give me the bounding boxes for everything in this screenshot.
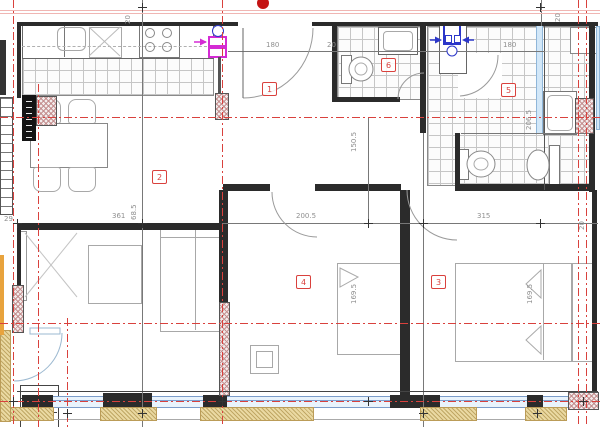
room-label-6: 6 [381,58,396,72]
section-line [423,133,424,427]
axis-tick [13,219,22,228]
dim-text: 315 [477,212,490,220]
dim-text: 361 [112,212,125,220]
axis-tick [533,409,542,418]
insulation-strip-left [0,330,11,422]
axis-line-h [0,117,600,118]
kitchen-floor-tiles [22,57,214,96]
axis-line-h [0,401,600,402]
insulation-strip [100,407,157,421]
bath6-sink [383,31,413,51]
axis-line-pink [0,10,600,11]
dim-text: 169.5 [526,284,534,304]
axis-line-h [0,323,600,324]
toilet-tank [341,55,352,84]
axis-tick [536,3,545,12]
axis-tick [364,397,373,406]
wardrobe-divider [195,227,196,330]
insulation-strip [525,407,567,421]
bed-room3 [455,263,572,362]
wall-far-left-stub [0,40,6,95]
dining-table [30,123,108,168]
window-right-sliver [596,26,600,130]
balcony-door-leaf [30,328,60,334]
axis-tick [63,409,72,418]
axis-line-v [586,0,587,427]
bed-headboard-line [543,263,544,360]
axis-tick [138,3,147,12]
wc-door-arc [407,190,457,240]
wall-bath6-left [332,22,337,102]
red-marker-dot [257,0,269,9]
dimension-line [228,51,545,52]
window [53,396,103,408]
radiator [0,97,13,215]
wardrobe-slim [572,263,594,362]
room-label-5: 5 [501,83,516,97]
axis-tick [419,409,428,418]
room-label-2: 2 [152,170,167,184]
cooktop [139,25,180,58]
axis-tick [579,397,588,406]
dim-text: 20 [578,221,586,230]
chair [68,167,96,192]
kitchen-sink [57,27,86,51]
axis-line-pink [0,13,600,14]
insulation-strip [420,407,477,421]
bath5-sink [547,95,573,131]
washing-machine-detail [445,35,452,43]
counter-edge-dashed [22,46,212,47]
wall-left-lower [17,230,21,292]
axis-tick [138,409,147,418]
boiler-fixture[interactable] [208,36,227,47]
section-line [142,0,143,427]
dim-text: 29 [4,215,13,223]
door-swing-line [25,233,77,297]
axis-line-v [222,0,223,427]
dim-text: 206.5 [525,110,533,130]
bed-small [88,245,142,304]
chair [68,99,96,124]
dim-text: 180 [266,41,279,49]
insulation-strip [200,407,314,421]
dim-text: 180 [503,41,516,49]
nightstand-inner [256,351,273,368]
wall-inner-line [17,391,598,392]
bed-room4 [337,263,401,355]
dim-text: 169.5 [350,284,358,304]
wall-divider-right [400,190,410,395]
axis-tick [9,397,18,406]
axis-line-v [13,0,14,427]
wall-right-lower [592,190,597,395]
wardrobe [160,227,224,332]
wall-left-upper [17,22,21,98]
door-swing-line [25,233,77,297]
section-line [368,118,369,223]
wardrobe-line [160,237,222,238]
axis-tick [364,219,373,228]
wall-top-right [312,22,598,26]
entrance-door-arc [243,28,313,98]
dim-text: 20 [327,41,336,49]
wall-bedroom-top [17,223,222,230]
room-label-3: 3 [431,275,446,289]
hatched-pier [36,96,57,126]
axis-tick [138,219,147,228]
wall-corridor-c [455,184,591,191]
floor-plan: 20 180 20 180 20 150.5 206.5 29 361 68.5… [0,0,600,427]
dim-text: 20 [124,15,132,24]
washing-machine-detail [454,35,461,43]
wall-corridor-a [223,184,270,191]
axis-tick [419,219,428,228]
axis-line-v [578,0,579,427]
cutting-board [89,27,122,58]
axis-tick [536,219,545,228]
dim-text: 68.5 [130,204,138,220]
wall-kitchen-hall [218,57,221,93]
axis-tick [218,397,227,406]
hatched-pier [219,302,230,396]
axis-line-v [38,84,39,427]
wall-wc-left [455,133,460,185]
wall-line [461,133,589,134]
room-label-1: 1 [262,82,277,96]
room-label-4: 4 [296,275,311,289]
wall-tag [22,95,36,141]
bidet-back [549,145,560,188]
dim-text: 20 [554,13,562,22]
dim-text: 150.5 [350,132,358,152]
wall-divider-left [219,190,228,302]
dim-text: 200.5 [296,212,316,220]
window [152,396,203,408]
wall-corridor-b [315,184,401,191]
wall-bath6-bottom [332,97,400,102]
